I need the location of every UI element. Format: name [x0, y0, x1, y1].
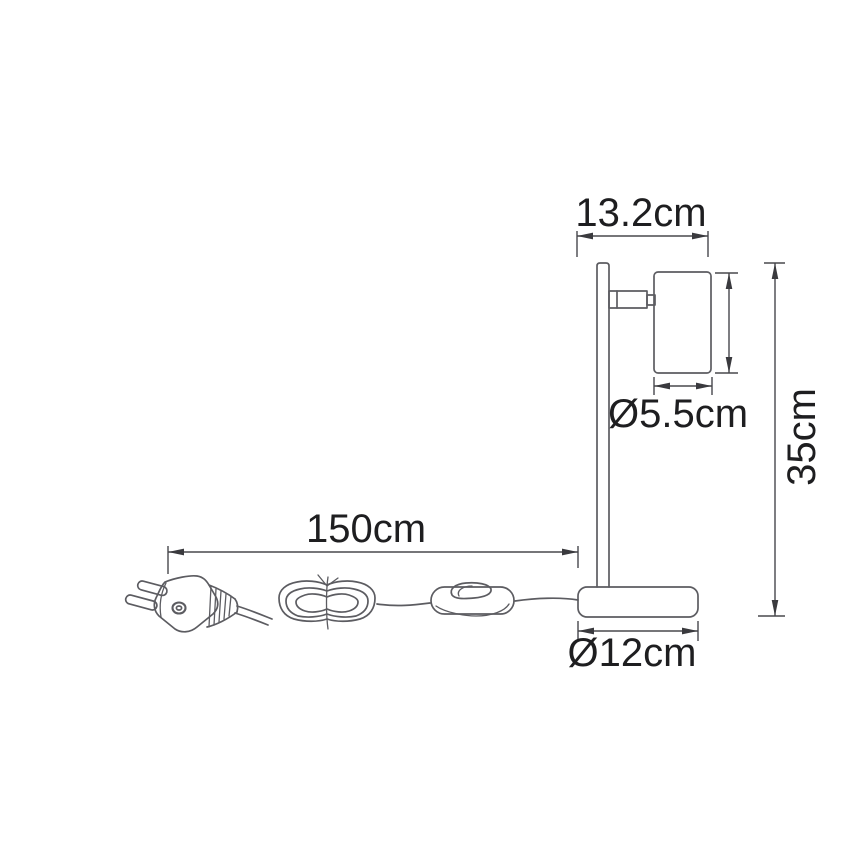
dimension-label: 150cm [306, 507, 426, 551]
dimension-head-width: 13.2cm [575, 191, 708, 257]
coiled-cable-icon [279, 575, 375, 629]
arrowhead-icon [562, 549, 578, 556]
dimension-base-diameter: Ø12cm [568, 621, 698, 675]
head-outline [654, 272, 711, 373]
plug-body [154, 576, 217, 632]
plug-screw [173, 603, 186, 614]
inline-switch-icon [431, 583, 514, 616]
cable-segment [237, 606, 272, 619]
switch-rocker [451, 583, 491, 599]
lamp-head [654, 272, 711, 373]
arrowhead-icon [726, 357, 733, 373]
strain-relief-rib [224, 594, 226, 619]
arrowhead-icon [168, 549, 184, 556]
cable-segment [377, 603, 430, 606]
dimension-label: 35cm [780, 388, 824, 486]
plug-screw-slot [176, 606, 181, 610]
joint-barrel [609, 291, 647, 308]
dimension-label: Ø5.5cm [608, 392, 748, 436]
strain-relief-rib [229, 596, 231, 616]
dimension-label: Ø12cm [568, 631, 697, 675]
arrowhead-icon [772, 263, 779, 279]
swivel-joint [609, 291, 655, 308]
plug-pin [125, 594, 158, 611]
cable-segment [515, 598, 578, 601]
arrowhead-icon [696, 383, 712, 390]
dimension-head-diameter: Ø5.5cm [608, 377, 748, 436]
arrowhead-icon [726, 273, 733, 289]
dimension-total-height: 35cm [758, 263, 824, 616]
lamp-dimension-drawing: 13.2cm Ø5.5cm 35cm 150cm [0, 0, 868, 868]
arrowhead-icon [772, 600, 779, 616]
cable-tie-branch [318, 575, 327, 586]
drawing-canvas: 13.2cm Ø5.5cm 35cm 150cm [0, 0, 868, 868]
base-outline [578, 587, 698, 617]
dimension-cable-length: 150cm [168, 507, 578, 574]
strain-relief-rib [209, 586, 211, 627]
dimension-label: 13.2cm [575, 191, 706, 235]
dimension-head-height [715, 273, 738, 373]
arrowhead-icon [654, 383, 670, 390]
lamp-base [578, 587, 698, 617]
power-plug-icon [125, 576, 238, 632]
strain-relief-rib [219, 591, 221, 622]
